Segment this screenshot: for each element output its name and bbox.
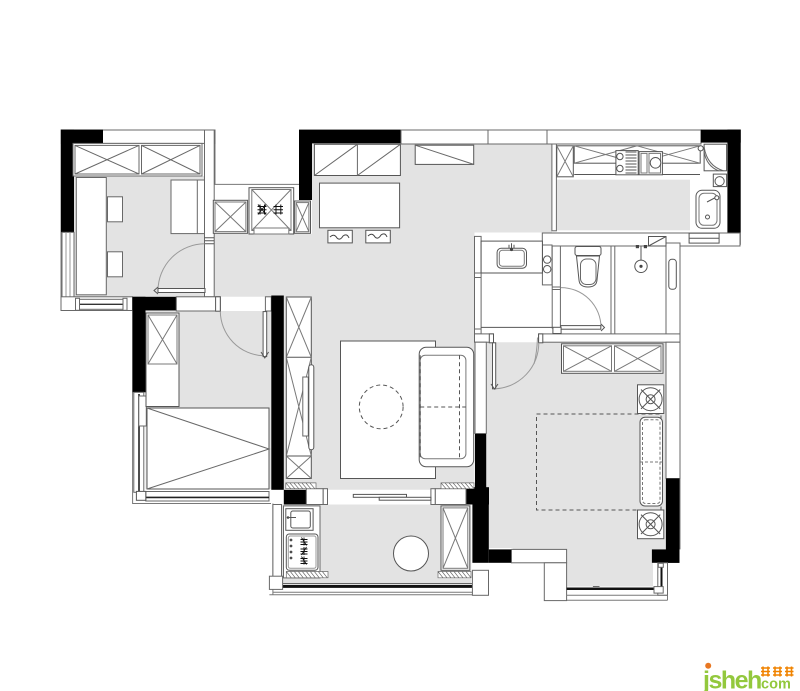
svg-text:.com: .com bbox=[757, 677, 791, 691]
svg-text:jsheh: jsheh bbox=[702, 667, 761, 691]
